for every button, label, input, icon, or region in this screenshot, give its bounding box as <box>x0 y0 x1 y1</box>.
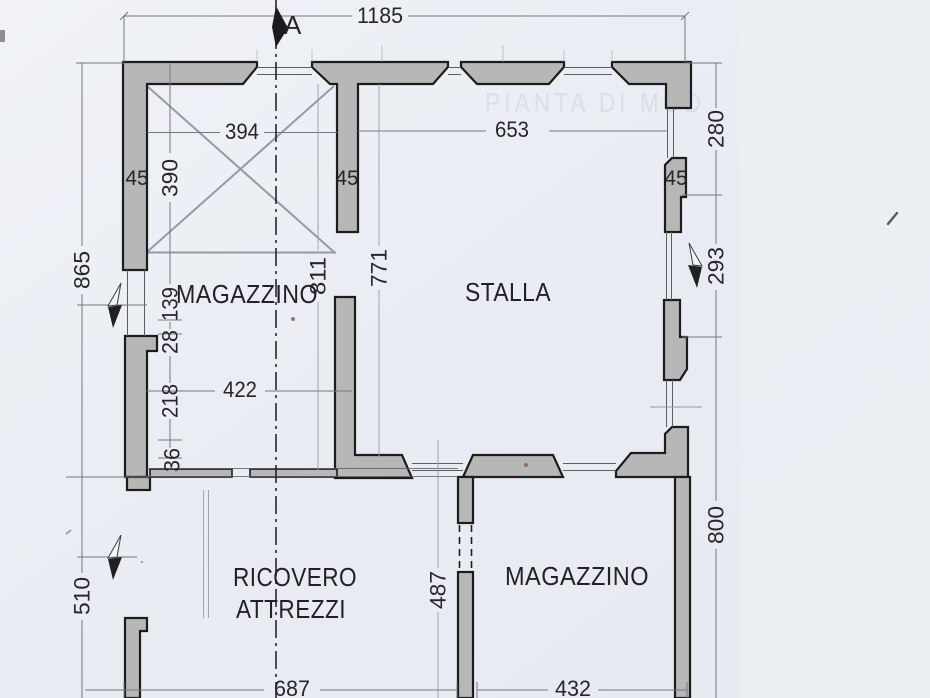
wall-stalla-bottom-pier <box>463 455 563 477</box>
dim-seg-36: 36 <box>160 448 185 472</box>
wall-right-lower <box>675 477 690 698</box>
wall-middle-bottom-upper <box>458 477 473 523</box>
dim-left-upper: 865 <box>70 251 95 289</box>
dim-room-top-width: 394 <box>225 119 259 144</box>
speck-gray-2 <box>141 561 143 563</box>
dim-right-upper: 280 <box>704 110 729 148</box>
room-label-ricovero-line2: ATTREZZI <box>236 594 346 624</box>
dim-room-top-height: 390 <box>158 159 183 197</box>
dim-left-lower: 510 <box>70 577 95 615</box>
dim-wall-thickness-right: 45 <box>665 167 688 190</box>
wall-middle-bottom-lower <box>458 572 473 698</box>
dim-wall-thickness-mid: 45 <box>336 167 359 190</box>
dim-ricovero-inner-height: 487 <box>426 571 451 609</box>
sill-left-room-b <box>250 469 337 477</box>
dim-right-lower: 800 <box>704 506 729 544</box>
wall-top-window-pier <box>461 62 564 84</box>
dim-seg-28: 28 <box>158 330 183 354</box>
dim-stalla-inner-height: 771 <box>367 249 392 287</box>
speck-brown-2 <box>524 463 528 467</box>
room-label-ricovero-line1: RICOVERO <box>233 562 357 592</box>
room-label-magazzino-bottom: MAGAZZINO <box>505 561 649 591</box>
dim-seg-218: 218 <box>158 384 183 418</box>
dim-bottom-right-width: 432 <box>555 676 591 698</box>
dim-bottom-left-width: 687 <box>274 676 310 698</box>
dim-wall-thickness-left: 45 <box>126 167 149 190</box>
dim-magazzino-inner-width: 422 <box>223 377 257 402</box>
room-label-stalla: STALLA <box>465 277 551 307</box>
dim-total-width: 1185 <box>357 3 403 28</box>
wall-left-foot <box>127 477 150 490</box>
paper-right-margin <box>740 0 930 698</box>
section-label: A <box>284 10 302 40</box>
room-label-magazzino-top: MAGAZZINO <box>176 279 318 309</box>
speck-brown-1 <box>291 317 295 321</box>
floor-plan-canvas: PIANTA DI MOD <box>0 0 930 698</box>
scanned-floor-plan: PIANTA DI MOD <box>0 0 930 698</box>
dim-stalla-width: 653 <box>495 117 529 142</box>
edge-mark-left <box>0 30 5 42</box>
dim-right-opening: 293 <box>704 247 729 285</box>
